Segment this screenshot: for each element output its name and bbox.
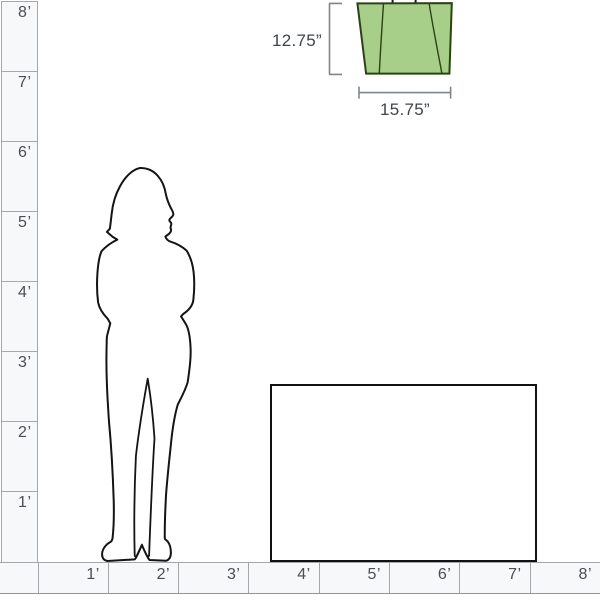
width-dimension-line [359,87,451,99]
height-dimension-line [329,3,342,74]
scale-diagram: 8’ 7’ 6’ 5’ 4’ 3’ 2’ 1’ 1’ 2’ 3’ 4’ 5’ 6… [0,0,600,600]
product-shade [357,3,451,74]
product-height-label: 12.75” [256,31,322,51]
diagram-overlay [0,0,600,600]
product-width-label: 15.75” [345,100,465,120]
